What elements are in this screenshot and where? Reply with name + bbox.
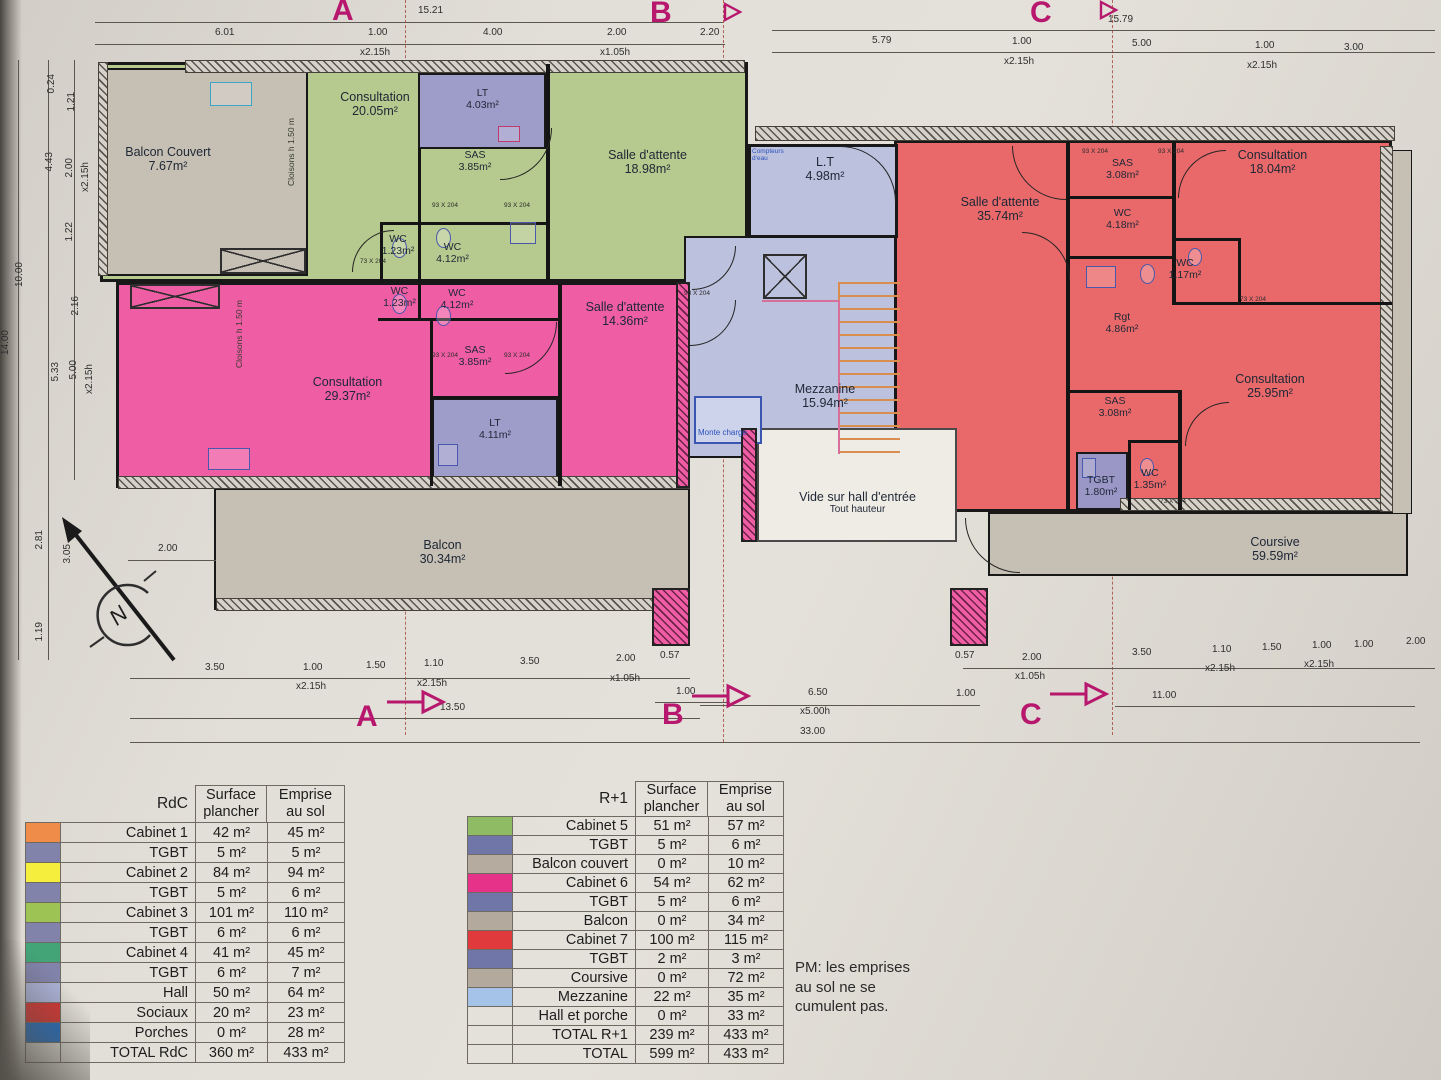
legend-header-row: RdCSurface plancherEmprise au sol [25, 785, 345, 823]
legend-surface-value: 50 m² [195, 983, 267, 1003]
legend-swatch [467, 950, 513, 969]
legend-label: Cabinet 5 [513, 817, 635, 836]
legend-row: TGBT2 m²3 m² [467, 950, 784, 969]
dim-label: 1.00 [956, 688, 975, 699]
legend-label: TGBT [513, 950, 635, 969]
floor-opening-box [763, 254, 807, 299]
legend-title: R+1 [513, 781, 635, 817]
door-tag: 93 X 204 [1158, 148, 1184, 155]
legend-emprise-value: 6 m² [708, 893, 784, 912]
legend-surface-value: 0 m² [195, 1023, 267, 1043]
legend-label: TOTAL RdC [95, 1043, 195, 1063]
wall [1178, 390, 1182, 510]
room-label: WC4.18m² [1075, 208, 1170, 232]
dim-label: 1.21 [66, 92, 77, 111]
legend-surface-value: 5 m² [635, 893, 708, 912]
legend-label: Balcon couvert [513, 855, 635, 874]
cloisons-label: Cloisons h 1.50 m [234, 300, 244, 368]
legend-swatch [25, 903, 61, 923]
wall [378, 318, 560, 321]
dim-line [128, 560, 216, 561]
legend-label: Mezzanine [513, 988, 635, 1007]
dim-label: x2.15h [1205, 663, 1235, 674]
photo-corner-shadow [0, 940, 90, 1080]
dim-label: 6.50 [808, 687, 827, 698]
porch-pillar [652, 588, 690, 646]
legend-emprise-value: 33 m² [708, 1007, 784, 1026]
coursive-right-strip [1392, 150, 1412, 514]
room-label: SAS3.08m² [1075, 158, 1170, 182]
col-header-emprise: Emprise au sol [267, 785, 345, 823]
dim-label: 1.50 [366, 660, 385, 671]
dim-line [963, 668, 1435, 669]
dim-label: 0.24 [46, 74, 57, 93]
pm-note: PM: les emprises au sol ne se cumulent p… [795, 958, 945, 1017]
legend-row: TGBT5 m²6 m² [25, 883, 345, 903]
legend-emprise-value: 45 m² [267, 943, 345, 963]
legend-swatch [467, 912, 513, 931]
legend-surface-value: 54 m² [635, 874, 708, 893]
legend-surface-value: 20 m² [195, 1003, 267, 1023]
dim-label: 4.43 [44, 152, 55, 171]
dim-label: 2.16 [70, 296, 81, 315]
dim-line [130, 742, 1420, 743]
dim-line [1115, 706, 1415, 707]
dim-label: 1.22 [64, 222, 75, 241]
dim-label: 14.00 [0, 330, 11, 355]
legend-surface-value: 0 m² [635, 969, 708, 988]
door-tag: 73 X 204 [1240, 296, 1266, 303]
legend-surface-value: 0 m² [635, 855, 708, 874]
legend-row: Hall et porche0 m²33 m² [467, 1007, 784, 1026]
legend-swatch [25, 863, 61, 883]
dim-label: 2.00 [158, 543, 177, 554]
legend-label: Porches [95, 1023, 195, 1043]
room-label: SAS3.85m² [415, 150, 535, 174]
dim-line [772, 30, 1435, 31]
legend-swatch [467, 988, 513, 1007]
section-label-b: B [650, 0, 672, 28]
legend-surface-value: 6 m² [195, 923, 267, 943]
legend-row: Balcon0 m²34 m² [467, 912, 784, 931]
legend-label: TGBT [95, 843, 195, 863]
dim-label: 5.00 [68, 360, 79, 379]
door-tag: 73 X 204 [360, 258, 386, 265]
legend-row: Balcon couvert0 m²10 m² [467, 855, 784, 874]
legend-label: Cabinet 4 [95, 943, 195, 963]
gap-cell [61, 843, 95, 863]
legend-surface-value: 0 m² [635, 1007, 708, 1026]
dim-label: 2.00 [607, 27, 626, 38]
room-label: Balcon30.34m² [350, 538, 535, 566]
legend-emprise-value: 45 m² [267, 823, 345, 843]
dim-label: 1.00 [1255, 40, 1274, 51]
swatch-spacer [25, 785, 61, 823]
legend-label: Balcon [513, 912, 635, 931]
room-label: Consultation18.04m² [1185, 148, 1360, 176]
dim-label: 15.21 [418, 5, 443, 16]
door-tag: 93 X 204 [504, 202, 530, 209]
dim-label: 1.10 [424, 658, 443, 669]
dim-label: x1.05h [610, 673, 640, 684]
legend-emprise-value: 35 m² [708, 988, 784, 1007]
section-label-b-bottom: B [662, 700, 684, 730]
dim-label: 10.00 [14, 262, 25, 287]
table-r1: R+1Surface plancherEmprise au solCabinet… [467, 781, 784, 1064]
dim-line [130, 718, 700, 719]
room-label: LT4.11m² [432, 418, 558, 442]
dim-label: 5.33 [50, 362, 61, 381]
legend-swatch [467, 1045, 513, 1064]
north-arrow: N [52, 515, 192, 675]
legend-row: TGBT5 m²6 m² [467, 893, 784, 912]
dim-label: x2.15h [360, 47, 390, 58]
legend-surface-value: 6 m² [195, 963, 267, 983]
legend-emprise-value: 64 m² [267, 983, 345, 1003]
room-label: WC1.35m² [1118, 468, 1182, 492]
dim-label: 1.00 [1354, 639, 1373, 650]
sink-icon [510, 222, 536, 244]
legend-label: Hall et porche [513, 1007, 635, 1026]
legend-swatch [467, 817, 513, 836]
legend-emprise-value: 6 m² [267, 923, 345, 943]
wall [1172, 302, 1392, 305]
legend-emprise-value: 7 m² [267, 963, 345, 983]
legend-row: Cabinet 654 m²62 m² [467, 874, 784, 893]
section-arrow-icon [690, 682, 752, 710]
toilet-icon [1140, 264, 1155, 284]
legend-emprise-value: 72 m² [708, 969, 784, 988]
section-arrow-icon [385, 688, 447, 716]
gap-cell [61, 903, 95, 923]
room-label: LT4.03m² [425, 88, 540, 112]
legend-label: Coursive [513, 969, 635, 988]
sink-icon [210, 82, 252, 106]
legend-surface-value: 0 m² [635, 912, 708, 931]
exterior-wall-hatch [755, 126, 1395, 141]
legend-swatch [25, 823, 61, 843]
legend-emprise-value: 433 m² [708, 1026, 784, 1045]
col-header-surface: Surface plancher [195, 785, 267, 823]
legend-swatch [467, 931, 513, 950]
legend-emprise-value: 115 m² [708, 931, 784, 950]
legend-swatch [467, 893, 513, 912]
legend-row: TOTAL R+1239 m²433 m² [467, 1026, 784, 1045]
legend-emprise-value: 57 m² [708, 817, 784, 836]
dim-label: x2.15h [80, 162, 91, 192]
legend-emprise-value: 23 m² [267, 1003, 345, 1023]
dim-label: 3.50 [520, 656, 539, 667]
dim-label: 2.20 [700, 27, 719, 38]
dim-label: x1.05h [1015, 671, 1045, 682]
section-label-c-bottom: C [1020, 700, 1042, 730]
exterior-wall-hatch [1380, 146, 1393, 512]
wall [546, 64, 550, 280]
railing [838, 300, 840, 454]
legend-swatch [25, 883, 61, 903]
room-label: Consultation25.95m² [1180, 372, 1360, 400]
dim-label: x2.15h [1004, 56, 1034, 67]
room-label: SAS3.08m² [1070, 396, 1160, 420]
room-label: Rgt4.86m² [1072, 312, 1172, 336]
gap-cell [61, 863, 95, 883]
gap-cell [61, 883, 95, 903]
legend-swatch [467, 855, 513, 874]
legend-label: TGBT [513, 893, 635, 912]
gap-cell [61, 785, 95, 823]
legend-emprise-value: 10 m² [708, 855, 784, 874]
room-label: WC4.12m² [415, 242, 490, 266]
stairs [838, 282, 900, 454]
legend-emprise-value: 433 m² [708, 1045, 784, 1064]
room-label: Salle d'attente35.74m² [905, 195, 1095, 223]
legend-emprise-value: 6 m² [708, 836, 784, 855]
door-tag: 93 X 204 [432, 202, 458, 209]
room-label: Vide sur hall d'entréeTout hauteur [765, 490, 950, 515]
legend-row: Mezzanine22 m²35 m² [467, 988, 784, 1007]
monte-charge-label: Monte charge [698, 428, 747, 437]
door-tag: 93 X 204 [432, 352, 458, 359]
room-label: Salle d'attente14.36m² [560, 300, 690, 328]
dim-label: 11.00 [1152, 690, 1176, 701]
dim-label: 6.01 [215, 27, 234, 38]
railing [762, 300, 840, 302]
door-tag: 93 X 204 [684, 290, 710, 297]
dim-label: 1.50 [1262, 642, 1281, 653]
dim-label: 0.57 [955, 650, 974, 661]
dim-line [95, 22, 723, 23]
section-arrow-icon [722, 2, 744, 22]
legend-row: Cabinet 7100 m²115 m² [467, 931, 784, 950]
legend-emprise-value: 110 m² [267, 903, 345, 923]
dim-label: 5.00 [1132, 38, 1151, 49]
legend-swatch [467, 1007, 513, 1026]
room-label: Coursive59.59m² [1200, 535, 1350, 563]
dim-line [48, 60, 49, 660]
door-tag: 73 X 204 [1160, 498, 1186, 505]
legend-emprise-value: 34 m² [708, 912, 784, 931]
dim-label: x5.00h [800, 706, 830, 717]
dim-label: 3.50 [1132, 647, 1151, 658]
legend-label: TGBT [95, 923, 195, 943]
legend-row: Coursive0 m²72 m² [467, 969, 784, 988]
dim-label: x2.15h [296, 681, 326, 692]
legend-emprise-value: 62 m² [708, 874, 784, 893]
room-label: Consultation29.37m² [255, 375, 440, 403]
legend-label: Cabinet 7 [513, 931, 635, 950]
floor-opening-box [220, 248, 306, 274]
legend-surface-value: 42 m² [195, 823, 267, 843]
exterior-wall-hatch [118, 476, 690, 489]
dim-label: 2.00 [1022, 652, 1041, 663]
legend-surface-value: 51 m² [635, 817, 708, 836]
pink-wall-hatch [741, 428, 757, 542]
legend-label: Cabinet 3 [95, 903, 195, 923]
legend-label: Sociaux [95, 1003, 195, 1023]
wall [1066, 390, 1178, 393]
dim-label: 2.00 [1406, 636, 1425, 647]
room-label: WC1.17m² [1155, 258, 1215, 282]
gap-cell [61, 823, 95, 843]
legend-row: TOTAL599 m²433 m² [467, 1045, 784, 1064]
dim-line [18, 60, 19, 660]
dim-label: 1.00 [303, 662, 322, 673]
dim-label: 2.81 [34, 530, 45, 549]
legend-emprise-value: 5 m² [267, 843, 345, 863]
legend-label: Hall [95, 983, 195, 1003]
legend-row: Cabinet 284 m²94 m² [25, 863, 345, 883]
legend-surface-value: 41 m² [195, 943, 267, 963]
exterior-wall-hatch [98, 62, 108, 276]
door-arc [965, 518, 1020, 573]
section-label-c: C [1030, 0, 1052, 28]
vent-icon [498, 126, 520, 142]
legend-label: TOTAL [513, 1045, 635, 1064]
legend-label: Cabinet 6 [513, 874, 635, 893]
legend-swatch [467, 874, 513, 893]
cloisons-label: Cloisons h 1.50 m [286, 118, 296, 186]
legend-surface-value: 100 m² [635, 931, 708, 950]
sink-icon [1086, 266, 1116, 288]
dim-line [95, 44, 725, 45]
legend-surface-value: 5 m² [195, 883, 267, 903]
room-label: Salle d'attente18.98m² [555, 148, 740, 176]
section-arrow-icon [1098, 0, 1120, 20]
dim-label: 5.79 [872, 35, 891, 46]
section-label-a: A [332, 0, 354, 26]
legend-label: TGBT [95, 883, 195, 903]
dim-line [130, 678, 690, 679]
dim-label: 1.00 [1312, 640, 1331, 651]
dim-label: 1.00 [1012, 36, 1031, 47]
legend-label: Cabinet 2 [95, 863, 195, 883]
section-label-a-bottom: A [356, 702, 378, 732]
legend-row: TGBT5 m²5 m² [25, 843, 345, 863]
dim-label: 4.00 [483, 27, 502, 38]
dim-label: 0.57 [660, 650, 679, 661]
floor-opening-box [130, 284, 220, 309]
legend-surface-value: 101 m² [195, 903, 267, 923]
legend-title: RdC [95, 785, 195, 823]
sink-icon [208, 448, 250, 470]
wall [1172, 238, 1240, 241]
legend-surface-value: 5 m² [195, 843, 267, 863]
legend-label: Cabinet 1 [95, 823, 195, 843]
legend-emprise-value: 28 m² [267, 1023, 345, 1043]
exterior-wall-hatch [185, 60, 745, 73]
door-tag: 93 X 204 [504, 352, 530, 359]
room-label: Balcon Couvert7.67m² [118, 145, 218, 173]
dim-label: 2.00 [616, 653, 635, 664]
dim-line [772, 52, 1435, 53]
legend-emprise-value: 3 m² [708, 950, 784, 969]
dim-label: x2.15h [1304, 659, 1334, 670]
legend-label: TGBT [513, 836, 635, 855]
exterior-wall-hatch [216, 598, 690, 611]
legend-surface-value: 2 m² [635, 950, 708, 969]
legend-row: Cabinet 3101 m²110 m² [25, 903, 345, 923]
legend-emprise-value: 94 m² [267, 863, 345, 883]
legend-swatch [467, 1026, 513, 1045]
porch-pillar [950, 588, 988, 646]
sink-icon [438, 444, 458, 466]
legend-surface-value: 22 m² [635, 988, 708, 1007]
col-header-emprise: Emprise au sol [708, 781, 784, 817]
legend-surface-value: 239 m² [635, 1026, 708, 1045]
dim-label: 3.00 [1344, 42, 1363, 53]
legend-swatch [467, 836, 513, 855]
legend-row: Cabinet 551 m²57 m² [467, 817, 784, 836]
dim-label: 1.10 [1212, 644, 1231, 655]
dim-label: x2.15h [1247, 60, 1277, 71]
legend-surface-value: 5 m² [635, 836, 708, 855]
dim-label: x1.05h [600, 47, 630, 58]
door-tag: 93 X 204 [1082, 148, 1108, 155]
dim-label: 33.00 [800, 726, 825, 737]
legend-header-row: R+1Surface plancherEmprise au sol [467, 781, 784, 817]
legend-surface-value: 360 m² [195, 1043, 267, 1063]
legend-label: TGBT [95, 963, 195, 983]
compteurs-label: Compteurs d'eau [752, 148, 784, 162]
wall [1238, 238, 1241, 304]
col-header-surface: Surface plancher [635, 781, 708, 817]
swatch-spacer [467, 781, 513, 817]
dim-label: 3.50 [205, 662, 224, 673]
dim-line [74, 60, 75, 480]
dim-label: 1.19 [34, 622, 45, 641]
svg-text:N: N [104, 601, 132, 630]
legend-emprise-value: 433 m² [267, 1043, 345, 1063]
section-arrow-icon [1048, 680, 1110, 708]
room-label: WC4.12m² [418, 288, 496, 312]
legend-row: TGBT5 m²6 m² [467, 836, 784, 855]
room-label: Mezzanine15.94m² [745, 382, 905, 410]
legend-swatch [467, 969, 513, 988]
legend-swatch [25, 843, 61, 863]
legend-surface-value: 599 m² [635, 1045, 708, 1064]
legend-surface-value: 84 m² [195, 863, 267, 883]
wall [1128, 440, 1180, 443]
legend-row: Cabinet 142 m²45 m² [25, 823, 345, 843]
legend-label: TOTAL R+1 [513, 1026, 635, 1045]
legend-emprise-value: 6 m² [267, 883, 345, 903]
dim-label: 2.00 [64, 158, 75, 177]
dim-label: 1.00 [368, 27, 387, 38]
dim-label: x2.15h [84, 364, 95, 394]
wall [430, 396, 560, 399]
floor-plan-sheet: 15.21 6.01 1.00 x2.15h 4.00 2.00 x1.05h … [0, 0, 1441, 1080]
